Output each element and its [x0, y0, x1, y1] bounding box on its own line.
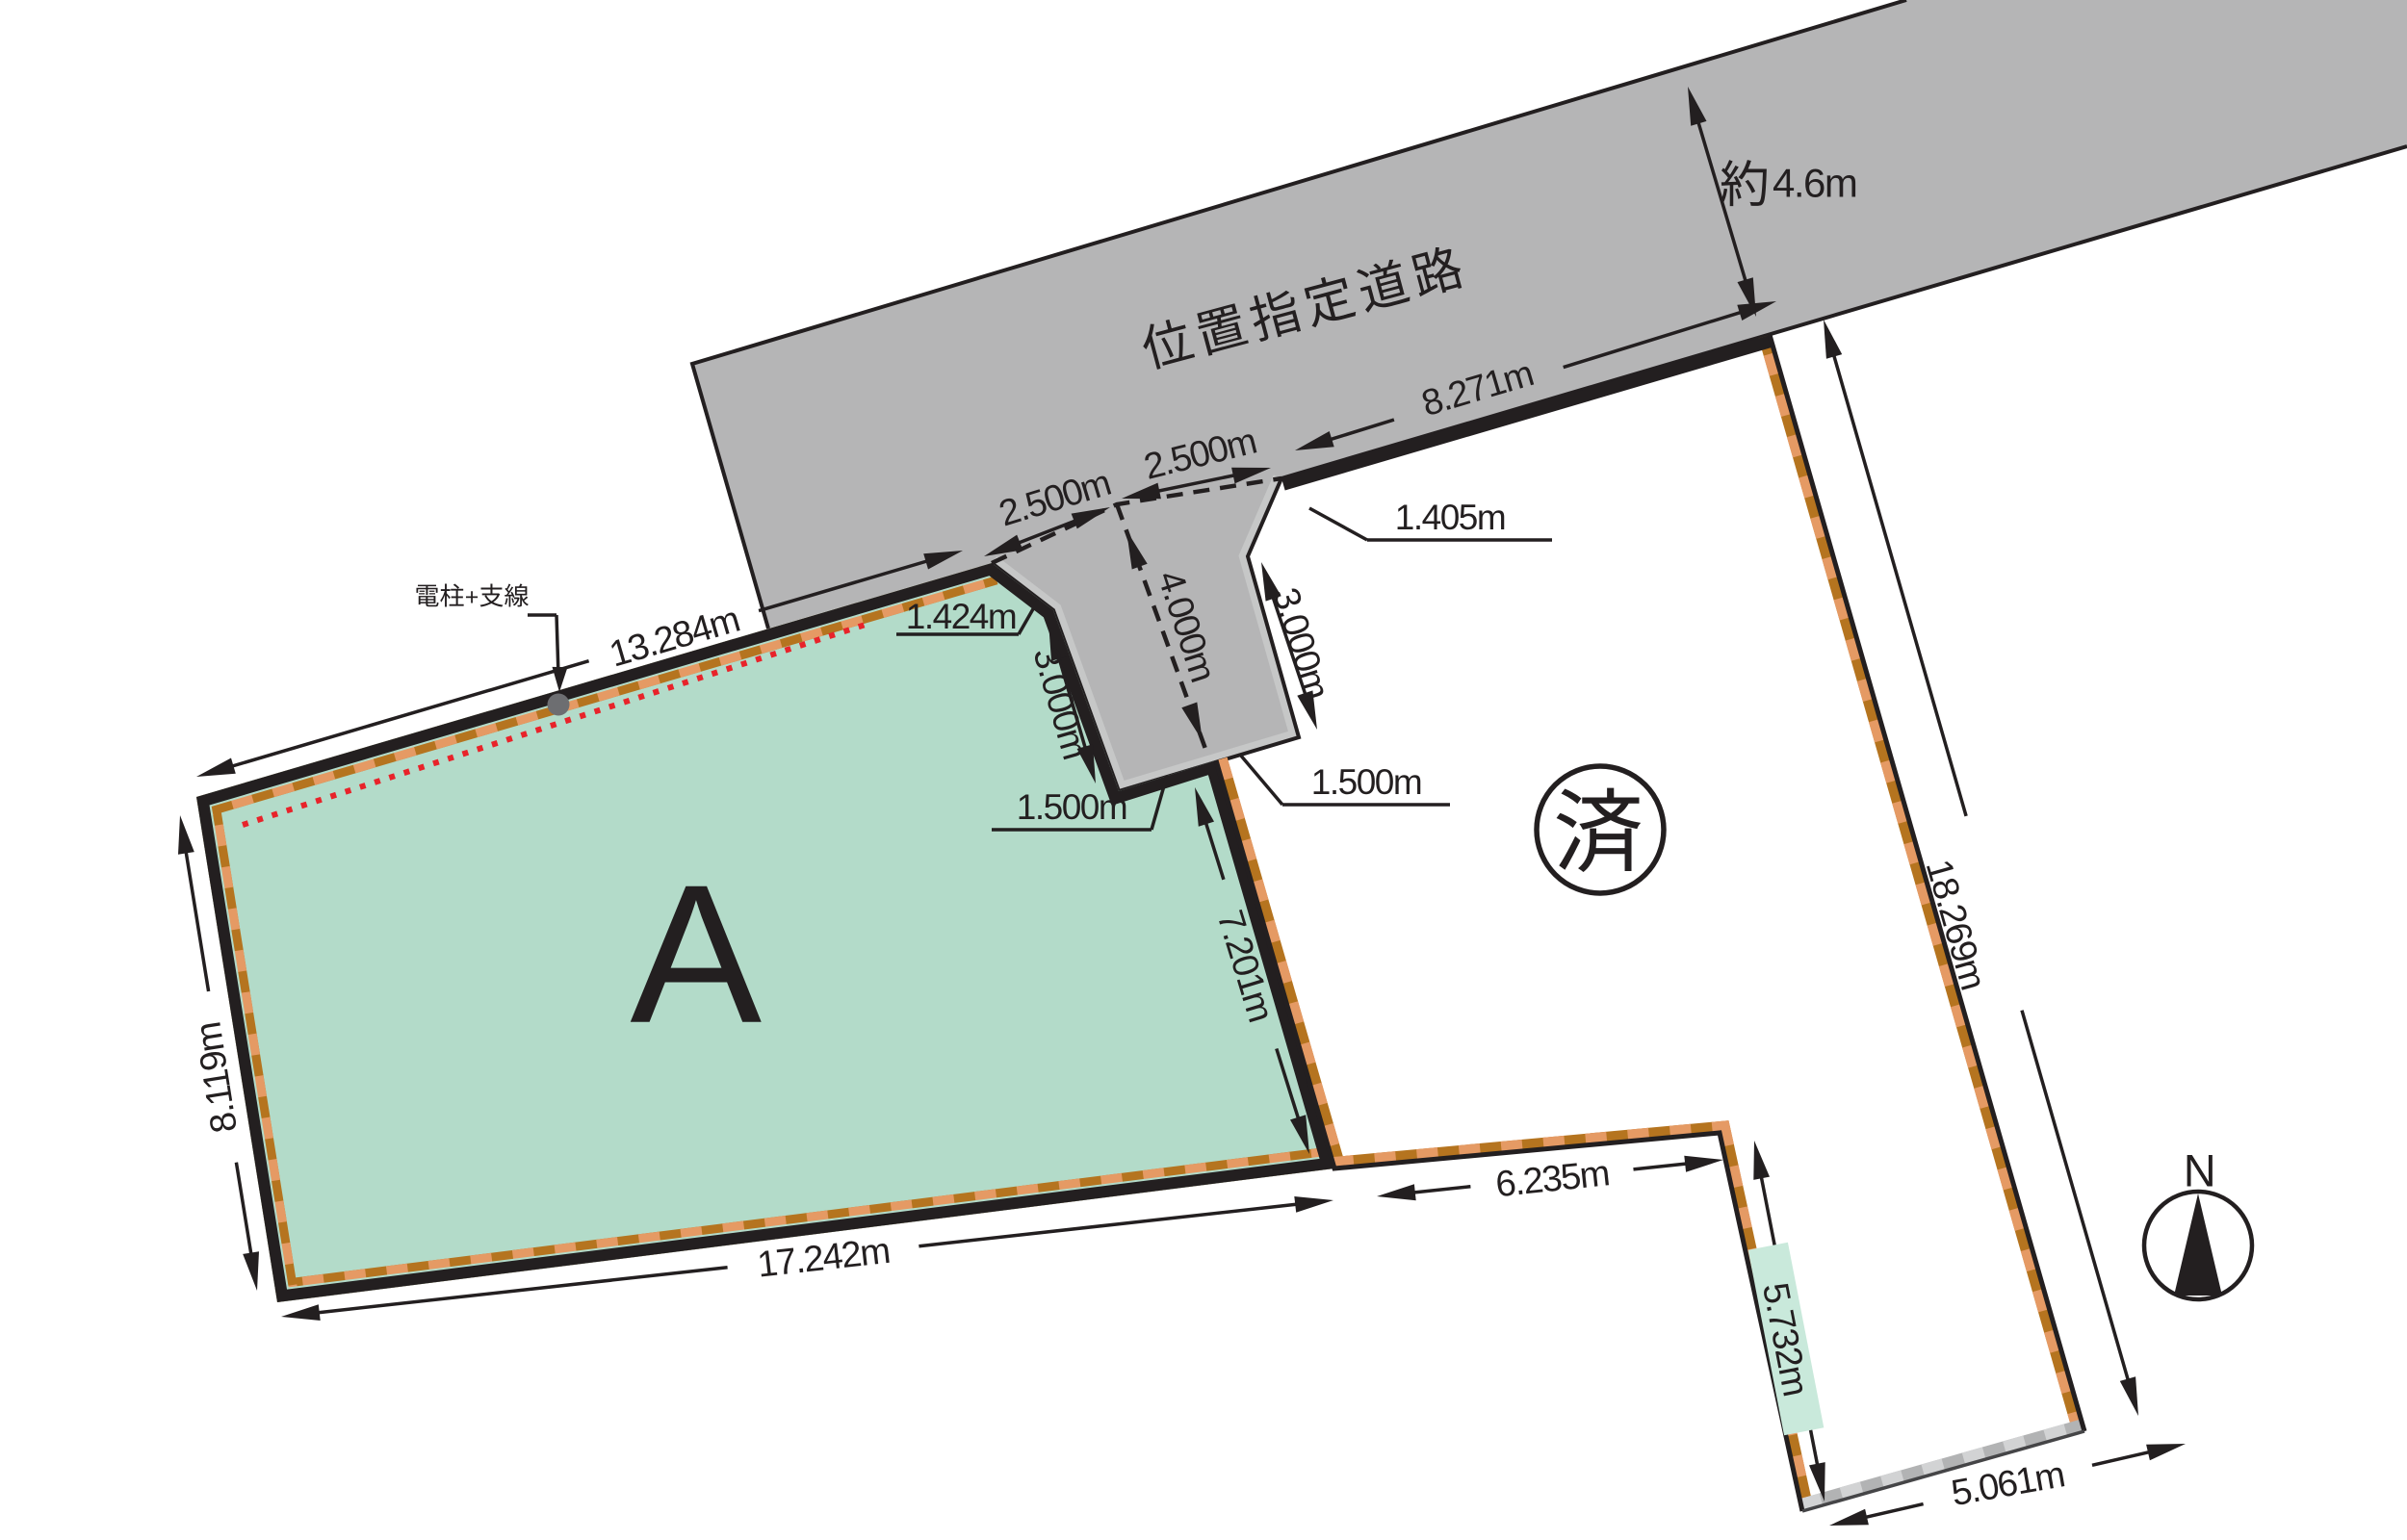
svg-text:4.6m: 4.6m [1773, 161, 1856, 206]
svg-text:1.405m: 1.405m [1395, 498, 1505, 537]
svg-text:1.500m: 1.500m [1017, 787, 1126, 827]
svg-text:A: A [630, 844, 762, 1065]
svg-text:1.500m: 1.500m [1311, 762, 1421, 802]
svg-text:N: N [2184, 1145, 2214, 1196]
svg-text:1.424m: 1.424m [906, 597, 1016, 636]
svg-text:+: + [465, 583, 479, 610]
